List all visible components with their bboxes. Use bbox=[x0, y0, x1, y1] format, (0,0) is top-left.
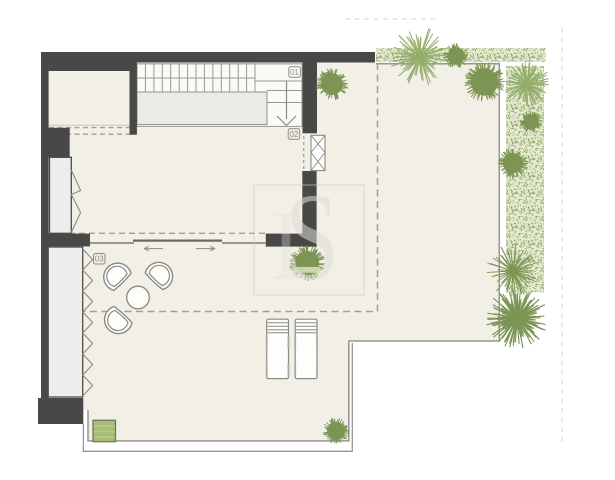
svg-text:S: S bbox=[285, 169, 339, 307]
svg-text:01: 01 bbox=[290, 68, 299, 77]
svg-text:02: 02 bbox=[289, 130, 298, 139]
svg-text:03: 03 bbox=[95, 255, 104, 264]
